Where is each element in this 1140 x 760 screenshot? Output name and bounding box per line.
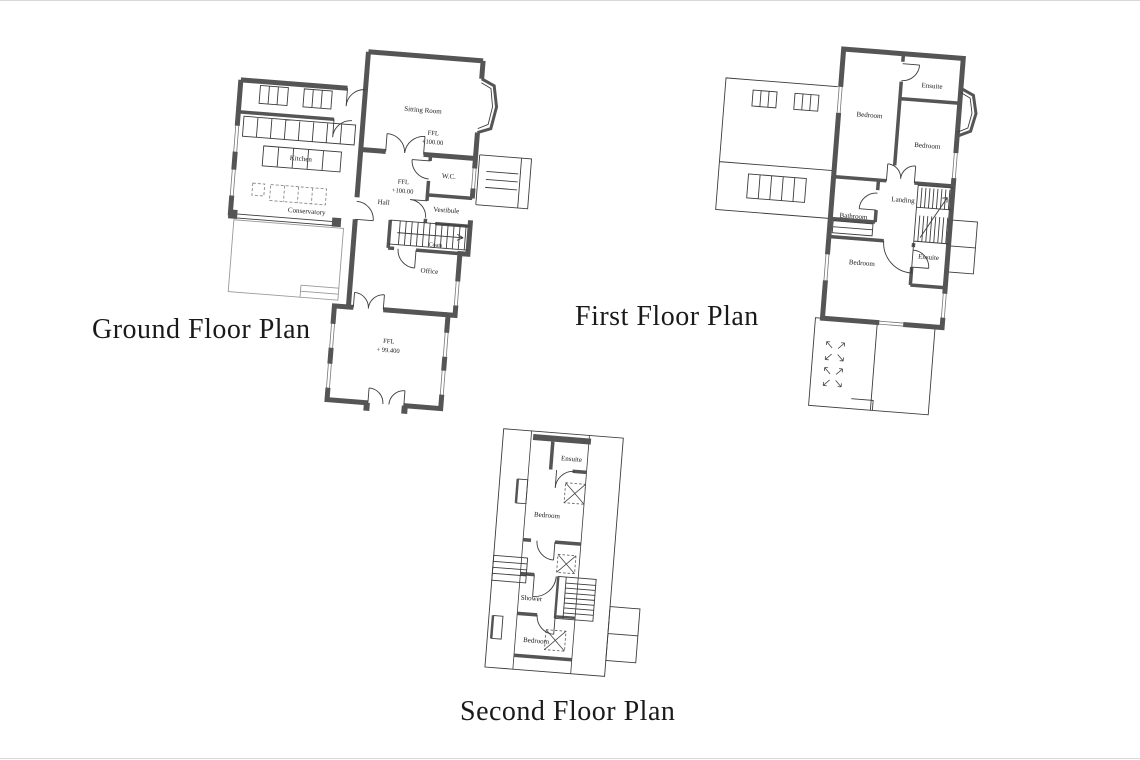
ground-porch-stub-right [401,406,408,414]
first-floor-plan-drawing: Bedroom Ensuite Bedroom Landing Bathroom… [713,34,1013,434]
ground-floor-geometry: Sitting Room FFL +100.00 W.C. FFL +100.0… [214,42,539,422]
room-label-bedroom-bottom: Bedroom [849,258,876,268]
floor-plans-document: Sitting Room FFL +100.00 W.C. FFL +100.0… [0,0,1140,760]
annex-window [747,174,807,202]
first-annex-roof [716,78,841,219]
room-label-sitting-room: Sitting Room [404,105,443,116]
room-label-bedroom-top: Bedroom [534,510,561,520]
ground-window-openings [217,126,476,398]
second-dormer-top [516,479,528,504]
ground-patio [228,220,343,300]
ground-conservatory-post-right [332,217,342,227]
page-bottom-border [0,758,1140,759]
ground-floor-plan-title: Ground Floor Plan [92,314,311,346]
room-label-bedroom-right: Bedroom [914,141,941,151]
second-floor-plan-title: Second Floor Plan [460,696,675,728]
ground-conservatory-post-left [228,209,238,219]
ground-conservatory-furniture [252,183,327,205]
room-label-office: Office [420,267,438,276]
room-label-ensuite-top: Ensuite [921,81,943,91]
ffl-sitting-label: FFL [427,130,439,138]
ffl-sitting-value: +100.00 [422,138,444,147]
room-label-shower: Shower [520,594,543,604]
rooflight-arrows-2 [823,368,842,387]
second-closet [492,555,528,583]
room-label-bedroom-top: Bedroom [856,110,883,120]
second-top-wall [533,434,591,445]
room-label-conservatory: Conservatory [288,206,327,217]
second-dormer-bottom [491,615,503,639]
room-label-hall: Hall [377,198,390,207]
ffl-lower-label: FFL [383,338,395,346]
ground-floor-plan-drawing: Sitting Room FFL +100.00 W.C. FFL +100.0… [226,36,576,436]
page-top-border [0,0,1140,1]
room-label-ensuite: Ensuite [561,454,583,464]
second-interior-walls [514,440,589,660]
first-floor-geometry: Bedroom Ensuite Bedroom Landing Bathroom… [701,40,990,417]
rooflight-arrows-1 [825,342,844,361]
room-label-ensuite-bottom: Ensuite [918,253,940,263]
second-floor-plan-drawing: Ensuite Bedroom Shower Bedroom [468,420,688,690]
second-door-swings [530,469,575,635]
room-label-bedroom-bottom: Bedroom [523,636,550,646]
ffl-lower-value: + 99.400 [376,346,400,355]
first-window-openings [822,87,960,328]
ffl-hall-label: FFL [397,179,409,187]
room-label-landing: Landing [891,195,915,205]
annex-rooflight-2 [794,93,819,111]
ground-external-steps [476,155,532,209]
second-floor-geometry: Ensuite Bedroom Shower Bedroom [485,429,653,679]
ground-porch-stub-left [363,403,370,411]
second-right-annex [606,607,640,663]
first-stairs-direction-arrow [920,196,947,240]
annex-rooflight-1 [752,90,777,108]
room-label-coats: Coats [428,242,443,249]
room-label-vestibule: Vestibule [433,205,460,215]
room-label-wc: W.C. [442,172,457,181]
first-floor-plan-title: First Floor Plan [575,301,759,333]
first-lower-roof [809,318,936,415]
ffl-hall-value: +100.00 [392,187,414,196]
ground-window-glazing [216,126,478,398]
first-closet [832,221,873,236]
